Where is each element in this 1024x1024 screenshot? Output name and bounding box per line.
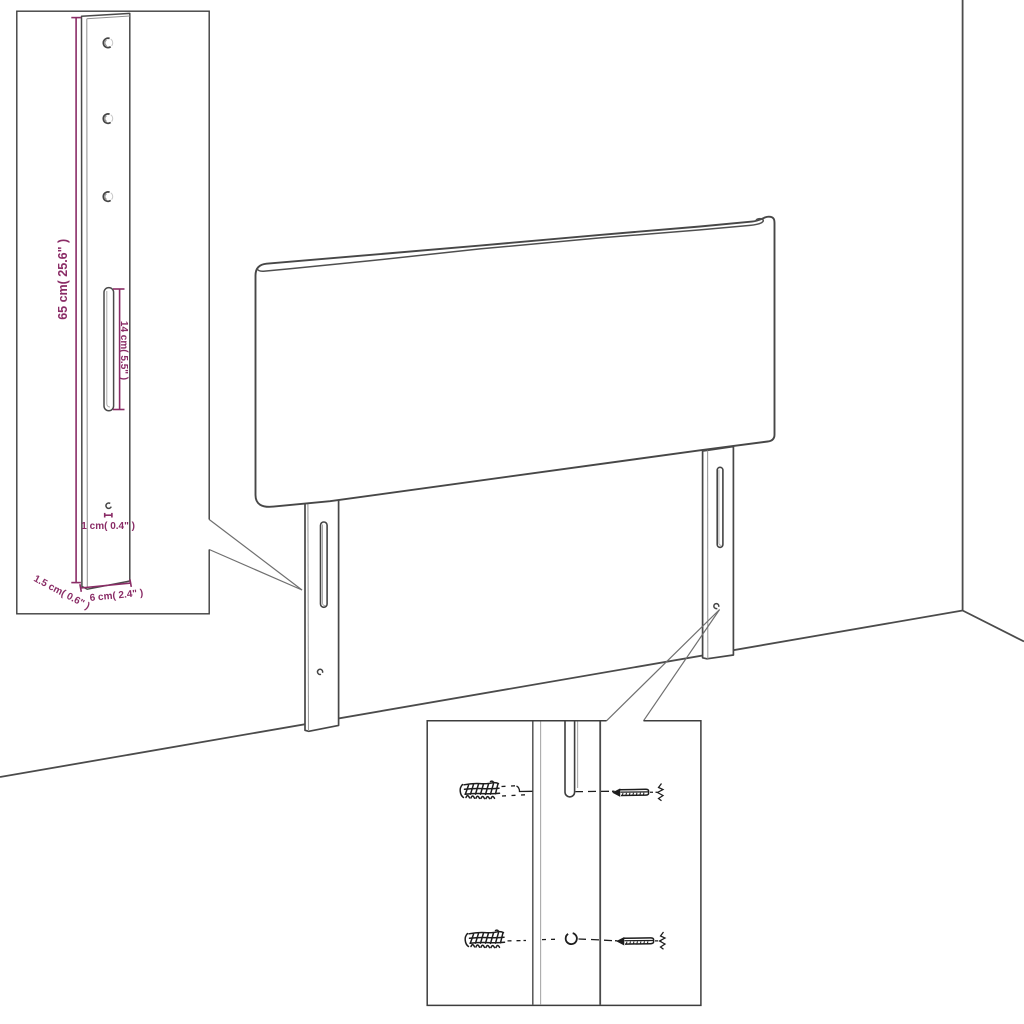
svg-text:1 cm( 0.4" ): 1 cm( 0.4" ) [81,521,135,532]
svg-text:14 cm( 5.5" ): 14 cm( 5.5" ) [118,321,129,380]
svg-text:65 cm( 25.6" ): 65 cm( 25.6" ) [56,239,70,320]
